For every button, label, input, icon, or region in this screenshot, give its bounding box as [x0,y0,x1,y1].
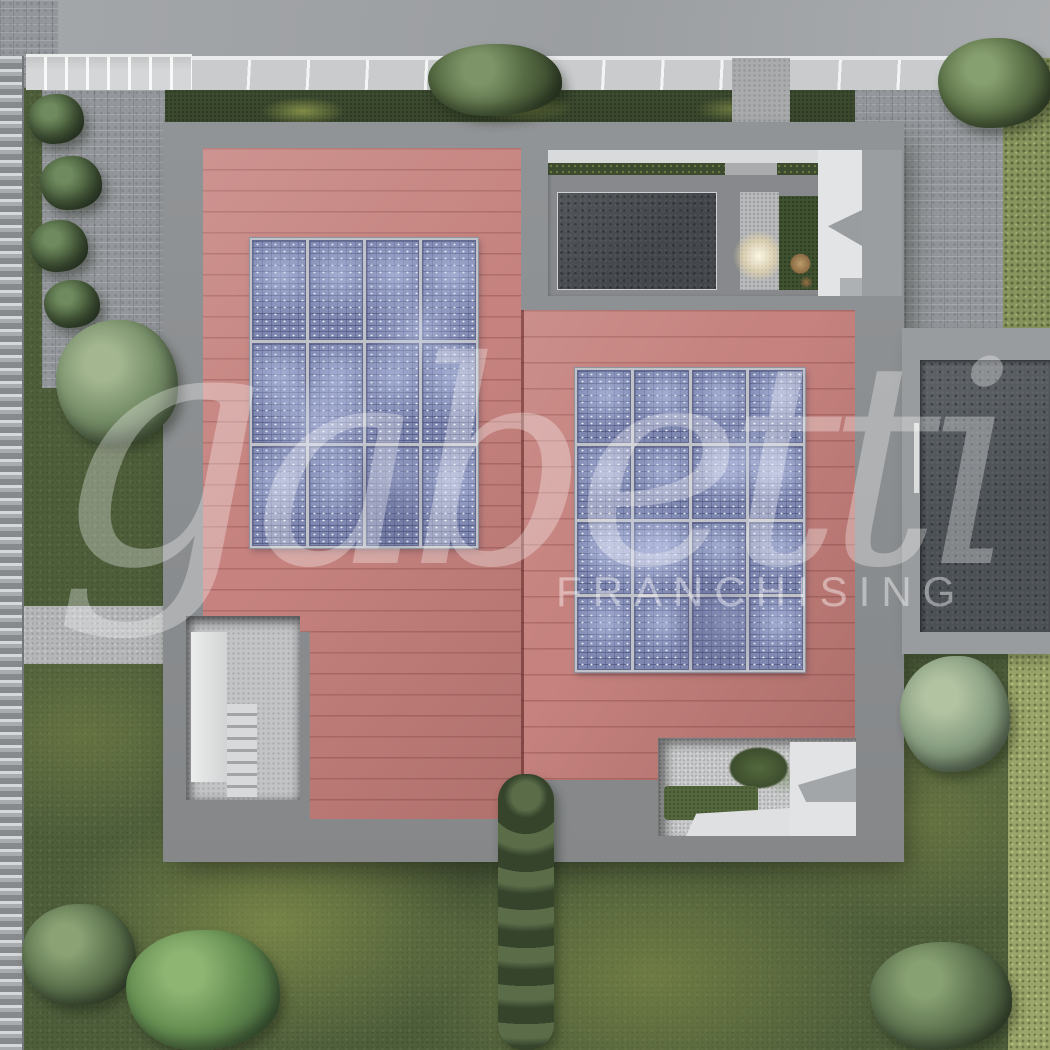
hedge-column-center [498,774,554,1050]
walkway-white [548,150,862,163]
shrub-left-2 [40,156,102,210]
neighbor-roof-dark [920,360,1050,632]
meadow-right [1008,648,1050,1050]
solar-panel [577,597,631,670]
shrub-left-1 [28,94,84,144]
solar-panel [634,370,688,443]
courtyard-wall-white [818,150,862,296]
courtyard-wall-white [191,632,227,782]
solar-panel [692,446,746,519]
solar-panel [422,446,476,546]
pergola-canopy [26,54,192,90]
solar-array-right [575,368,805,672]
gravel-path-top [732,58,790,128]
neighbor-building [902,328,1050,654]
shrub-left-3 [30,220,88,272]
solar-panel [692,370,746,443]
wall-shadow-notch [798,768,856,802]
neighbor-wall-highlight [914,423,919,493]
solar-array-left [250,238,478,548]
tree-bottom-left-2 [126,930,280,1050]
tree-right-pale [900,656,1010,772]
solar-panel [749,522,803,595]
solar-panel [577,522,631,595]
solar-panel [577,370,631,443]
solar-panel [422,240,476,340]
solar-panel [692,597,746,670]
solar-panel [749,370,803,443]
tree-bottom-left-1 [22,904,136,1006]
solar-panel [366,446,420,546]
solar-panel [252,240,306,340]
courtyard-gravel [740,192,779,290]
solar-panel [309,343,363,443]
solar-panel [634,522,688,595]
terrace-dark [557,192,717,290]
wall-step [840,278,862,296]
solar-panel [634,446,688,519]
solar-panel [366,240,420,340]
courtyard-bottom-right [658,738,856,836]
courtyard-hedge [548,163,830,175]
courtyard-shrubs [256,624,300,800]
wall-shadow-notch [828,210,862,246]
staircase [227,704,257,798]
courtyard-grass [779,196,818,290]
tree-top-right [938,38,1050,128]
solar-panel [634,597,688,670]
courtyard-bottom-left [186,616,300,800]
shrub-left-4 [44,280,100,328]
solar-panel [252,446,306,546]
aerial-render: gabetti FRANCHISING [0,0,1050,1050]
courtyard-wall-right [790,742,856,836]
solar-panel [309,446,363,546]
tree-bottom-right [870,942,1012,1050]
solar-panel [749,446,803,519]
solar-panel [366,343,420,443]
solar-panel [577,446,631,519]
courtyard-hedge-gap [725,163,777,175]
tree-left-mid [56,320,178,444]
gravel-path-left [0,606,178,664]
courtyard-top-right [548,150,862,296]
solar-panel [422,343,476,443]
garden-lamp-glow [732,232,786,280]
fence-left [0,56,24,1050]
solar-panel [309,240,363,340]
side-wall-strip [862,150,902,296]
solar-panel [749,597,803,670]
solar-panel [692,522,746,595]
solar-panel [252,343,306,443]
boundary-wall-top [192,56,1003,90]
tree-top-center [428,44,562,116]
